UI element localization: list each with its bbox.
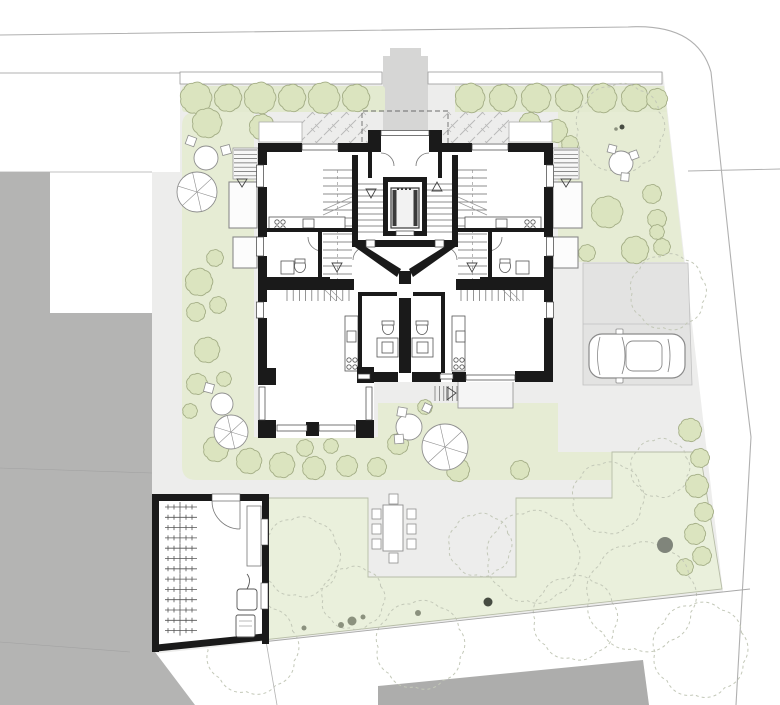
wall-segment [368,372,398,382]
shrub-dot [361,615,366,620]
hedge-bush [587,83,617,113]
wall-segment [356,420,374,438]
dining-chair [389,494,398,504]
tree [269,452,294,477]
balcony-west-2 [233,237,257,268]
window-opening [319,425,355,431]
tree [194,337,219,362]
wall-segment [368,152,372,178]
shower-tray [382,342,393,353]
street-fence-left [180,72,382,84]
tree [236,448,261,473]
tree [643,184,662,203]
wall-segment [544,187,553,237]
wall-segment [258,187,267,237]
dining-table [383,505,403,551]
garden-chair [203,382,214,393]
tree [621,236,648,264]
window-opening [257,237,264,256]
tree [591,196,623,228]
wall-segment [352,155,358,247]
wall-segment [383,177,427,182]
wall-segment [414,231,427,236]
window-opening [257,165,264,187]
dining-chair [372,509,381,519]
tree [302,456,325,479]
shower-tray [417,342,428,353]
car [589,329,685,383]
washbasin [516,261,529,274]
window-opening [259,387,265,420]
wall-segment [452,372,466,382]
kitchen-counter [452,316,465,371]
site-plan-page [0,0,780,705]
tree [337,455,358,476]
wall-segment [306,422,319,436]
bush [678,418,701,441]
balcony-east-2 [553,237,578,268]
window-opening [366,387,372,420]
hedge-bush [647,88,668,109]
bush [677,559,694,576]
hedge-bush [214,84,241,112]
garden-chair [394,434,404,444]
tree [185,268,212,296]
wall-segment [399,298,411,373]
tree [511,460,530,479]
tree [579,245,596,262]
bike-room-shelf [247,506,261,566]
wall-segment [375,240,435,247]
bike-room-window-2 [261,583,268,609]
tree [654,239,671,256]
window-opening [435,240,444,247]
wall-segment [442,143,472,152]
wall-segment [544,318,553,375]
elevator-rail [393,190,397,226]
wall-segment [515,371,553,382]
wall-segment [338,143,368,152]
site-plan-canvas [0,0,780,705]
shrub-dot [620,125,625,130]
wall-segment [258,143,267,165]
shrub-dot [348,617,357,626]
balcony-west-1 [229,182,257,228]
tree [324,439,339,454]
cellar-stair-east [553,148,579,179]
wall-segment [452,155,458,247]
window-opening [547,237,554,256]
wall-segment [458,228,544,232]
wall-segment [480,277,553,290]
wall-segment [422,177,427,236]
wall-segment [429,143,442,152]
wall-segment [413,292,445,296]
garden-chair [607,144,617,154]
elevator-rail [414,190,418,226]
hedge-bush [489,84,516,112]
window-opening [547,302,554,318]
dining-chair [389,553,398,563]
tree [217,372,232,387]
window-opening [257,302,264,318]
window-opening [440,374,453,379]
kitchen-sink [496,219,507,228]
bush [685,523,706,544]
wall-segment [383,231,396,236]
window-opening [302,144,338,150]
wall-segment [368,143,381,152]
tree [368,457,387,476]
garden-table [211,393,233,415]
kitchen-sink [303,219,314,228]
elevator [391,188,419,228]
tree [207,250,224,267]
hedge-bush [308,82,340,114]
hedge-bush [621,84,648,112]
kitchen-sink [347,331,356,342]
window-opening [277,425,307,431]
tree [297,440,314,457]
wall-segment [544,143,553,165]
dining-chair [372,539,381,549]
hedge-bush [555,84,582,112]
tree [210,297,227,314]
bush [693,546,712,565]
wall-segment [383,177,388,236]
window-opening [381,131,429,136]
street-fence-right [428,72,662,84]
garden-chair [621,173,630,182]
wall-segment [258,277,330,290]
wall-segment [258,368,276,385]
terrace-slab-southeast [458,381,513,408]
dining-chair [407,524,416,534]
cistern [382,321,394,325]
washbasin [281,261,294,274]
equipment-mower [237,589,257,610]
wall-segment [358,296,362,373]
existing-tree-trunk [657,537,673,553]
parasol [422,424,468,470]
wall-segment [267,228,352,232]
wall-segment [488,232,492,277]
tree [192,108,222,138]
window-opening [547,165,554,187]
window-opening [472,144,508,150]
bush [685,474,708,497]
hedge-bush [521,83,551,113]
wall-segment [429,130,442,144]
lightwell-northwest [259,122,302,142]
wall-segment [258,420,276,438]
wall-segment [438,152,442,178]
cistern [416,321,428,325]
wall-center-tip [399,271,411,284]
garden-chair [220,144,231,155]
window-opening [466,375,515,380]
wall-segment [412,372,441,382]
hedge-bush [342,84,369,112]
balcony-east-1 [553,182,582,228]
hedge-bush [244,82,276,114]
cistern [295,259,305,263]
dining-chair [407,539,416,549]
shrub-dot [415,610,421,616]
window-opening [358,374,370,379]
bike-room [152,494,269,652]
kitchen-sink [456,331,465,342]
shrub-dot [338,622,344,628]
hedge-bush [278,84,305,112]
tree [183,404,198,419]
tree [650,225,665,240]
lightwell-northeast [509,122,552,142]
tree [187,302,206,321]
cellar-stair-west [233,148,258,179]
wall-segment [456,279,480,290]
shrub-dot [302,626,307,631]
garden-table [194,146,218,170]
wall-segment [330,279,354,290]
parasol [214,415,248,449]
window-opening [366,240,375,247]
hedge-bush [455,83,485,113]
kitchen-counter [345,316,358,371]
bike-room-window-1 [261,519,268,545]
cistern [500,259,510,263]
bike-room-door-opening [212,494,240,501]
wall-segment [441,296,445,373]
wall-segment [318,232,322,277]
shrub-dot [484,598,493,607]
bush [695,502,714,521]
dining-chair [372,524,381,534]
parasol [177,172,217,212]
wall-segment [358,292,397,296]
dining-chair [407,509,416,519]
bush [691,448,710,467]
shrub-dot [614,127,618,131]
wall-segment [368,130,381,144]
garden-chair [397,407,407,417]
window-opening [396,231,414,236]
